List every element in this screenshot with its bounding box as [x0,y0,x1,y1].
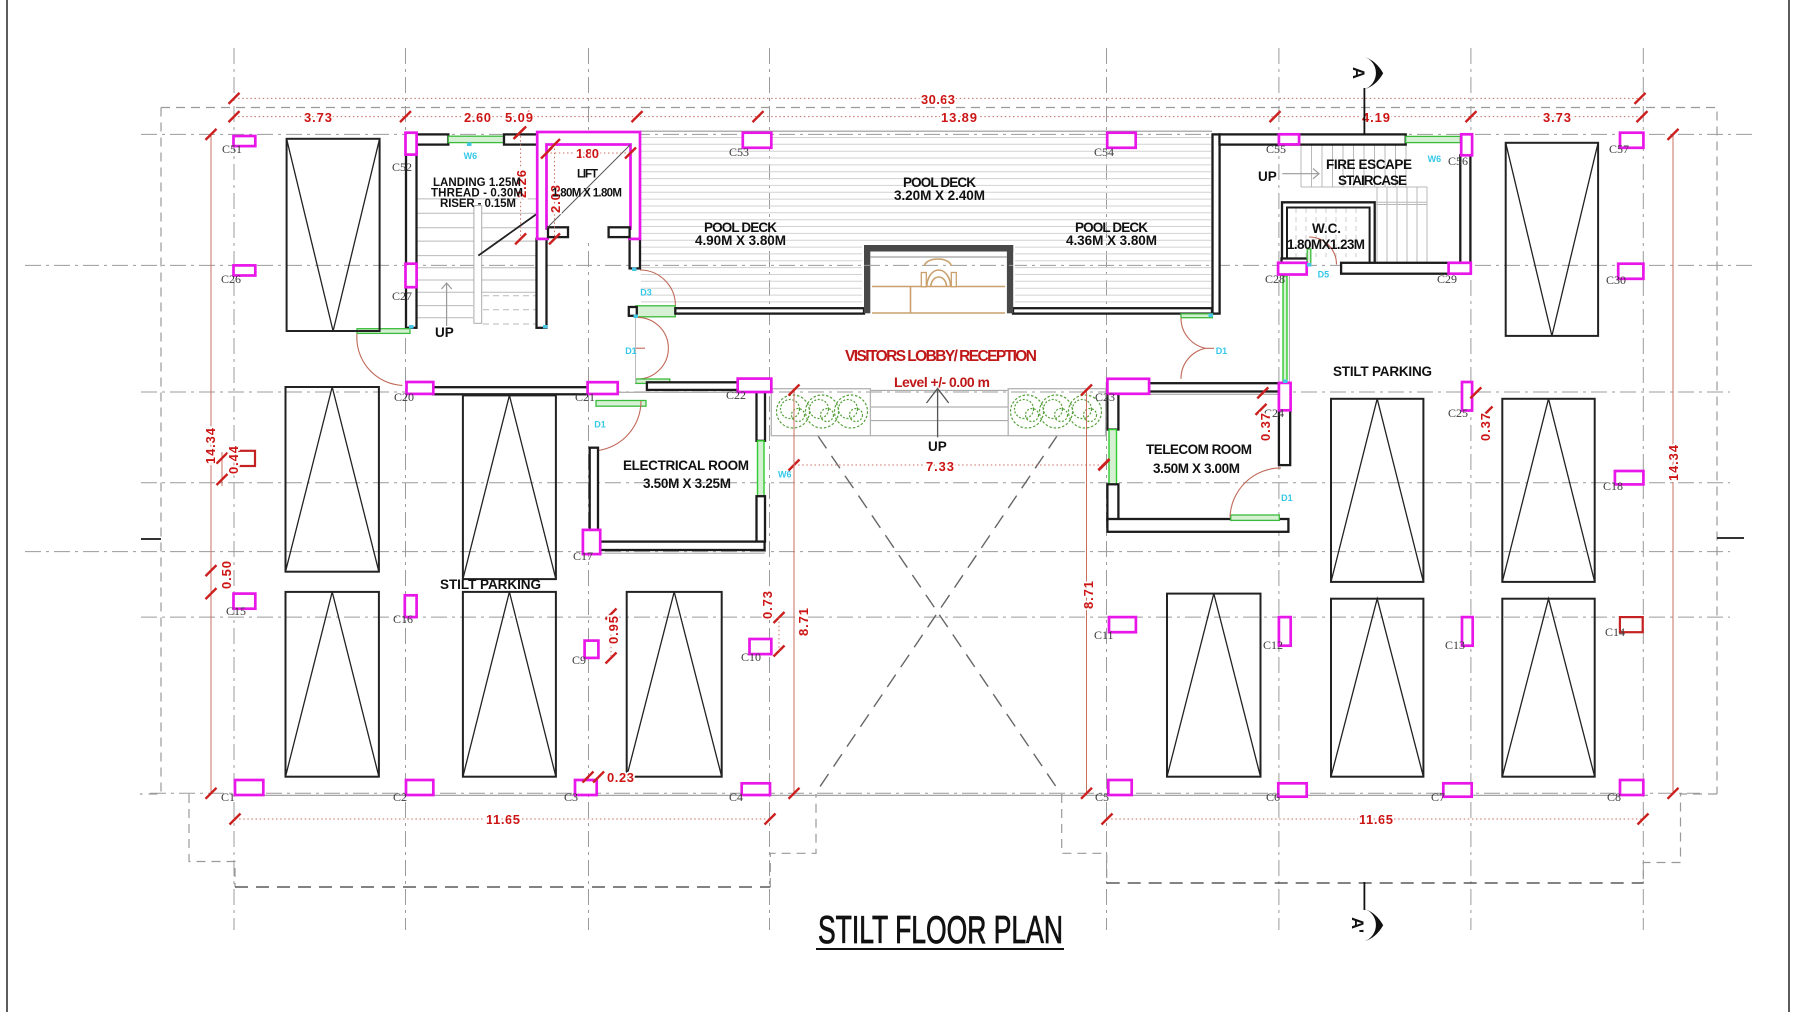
svg-text:C55: C55 [1266,142,1286,156]
svg-text:W.C.: W.C. [1312,221,1341,236]
svg-text:C15: C15 [226,604,246,618]
svg-text:C12: C12 [1263,638,1283,652]
svg-text:STILT PARKING: STILT PARKING [440,577,541,592]
svg-text:UP: UP [1258,169,1277,184]
svg-text:UP: UP [928,439,947,454]
svg-text:0.23: 0.23 [607,770,634,785]
svg-text:C30: C30 [1606,273,1626,287]
svg-text:3.20M X 2.40M: 3.20M X 2.40M [894,188,985,203]
svg-text:C17: C17 [573,549,593,563]
svg-text:D5: D5 [1318,270,1330,280]
svg-text:C27: C27 [392,289,412,303]
svg-text:C25: C25 [1448,406,1468,420]
svg-text:C2: C2 [393,790,407,804]
svg-text:W6: W6 [1428,154,1442,164]
svg-text:Level +/- 0.00 m: Level +/- 0.00 m [894,374,990,390]
svg-text:D1: D1 [1281,493,1293,503]
svg-text:FIRE ESCAPE: FIRE ESCAPE [1326,157,1412,172]
svg-text:A': A' [1348,917,1366,933]
svg-text:VISITORS LOBBY/ RECEPTION: VISITORS LOBBY/ RECEPTION [845,348,1037,365]
svg-text:C16: C16 [393,612,413,626]
svg-text:D1: D1 [1216,346,1228,356]
svg-text:1.80: 1.80 [576,146,599,161]
svg-text:30.63: 30.63 [921,92,955,107]
svg-text:C9: C9 [572,653,586,667]
svg-text:C21: C21 [575,390,595,404]
svg-text:STILT FLOOR PLAN: STILT FLOOR PLAN [818,909,1063,952]
svg-text:C29: C29 [1437,272,1457,286]
svg-text:C23: C23 [1095,390,1115,404]
svg-text:4.36M X 3.80M: 4.36M X 3.80M [1066,233,1157,248]
svg-text:D1: D1 [625,346,637,356]
svg-text:C26: C26 [221,272,241,286]
svg-text:0.44: 0.44 [226,445,241,474]
svg-text:3.73: 3.73 [304,110,332,125]
svg-text:UP: UP [435,325,454,340]
svg-text:C5: C5 [1095,790,1109,804]
svg-text:W6: W6 [778,470,792,480]
svg-text:C10: C10 [741,650,761,664]
svg-text:1.80M X 1.80M: 1.80M X 1.80M [552,188,622,200]
svg-text:C7: C7 [1431,790,1445,804]
svg-text:D3: D3 [640,288,652,298]
svg-text:8.71: 8.71 [1081,581,1096,609]
svg-text:STAIRCASE: STAIRCASE [1338,173,1407,188]
svg-text:0.50: 0.50 [219,561,234,589]
svg-text:C11: C11 [1094,628,1114,642]
svg-text:3.50M X 3.00M: 3.50M X 3.00M [1153,461,1240,476]
svg-text:C14: C14 [1605,625,1625,639]
svg-text:2.60: 2.60 [464,110,491,125]
svg-text:A: A [1349,67,1367,79]
svg-text:11.65: 11.65 [486,812,520,827]
svg-text:C51: C51 [222,142,242,156]
svg-text:4.90M X 3.80M: 4.90M X 3.80M [695,233,786,248]
svg-text:TELECOM ROOM: TELECOM ROOM [1146,442,1252,457]
svg-text:8.71: 8.71 [796,608,811,636]
svg-text:1.80MX1.23M: 1.80MX1.23M [1287,237,1365,252]
svg-text:0.37: 0.37 [1478,413,1493,441]
svg-text:C1: C1 [221,790,235,804]
svg-text:13.89: 13.89 [941,110,977,125]
svg-text:LIFT: LIFT [577,169,598,181]
svg-text:C28: C28 [1265,272,1285,286]
svg-text:3.50M X 3.25M: 3.50M X 3.25M [643,476,731,491]
svg-text:C20: C20 [394,390,414,404]
svg-text:14.34: 14.34 [203,427,218,464]
svg-text:C22: C22 [726,388,746,402]
svg-text:C8: C8 [1607,790,1621,804]
svg-text:C13: C13 [1445,638,1465,652]
svg-text:0.73: 0.73 [760,591,775,619]
svg-text:C6: C6 [1266,790,1280,804]
svg-text:C53: C53 [729,145,749,159]
svg-text:W6: W6 [464,151,478,161]
svg-text:0.95: 0.95 [606,616,621,644]
svg-text:C54: C54 [1094,145,1114,159]
svg-text:0.37: 0.37 [1258,413,1273,441]
svg-text:11.65: 11.65 [1359,812,1393,827]
svg-text:C4: C4 [729,790,743,804]
svg-text:STILT PARKING: STILT PARKING [1333,364,1432,379]
svg-text:C3: C3 [564,790,578,804]
svg-text:C18: C18 [1603,479,1623,493]
svg-text:RISER - 0.15M: RISER - 0.15M [440,198,516,210]
svg-text:C57: C57 [1609,142,1629,156]
svg-text:7.33: 7.33 [926,459,954,474]
svg-text:D1: D1 [594,420,606,430]
svg-text:5.09: 5.09 [505,110,533,125]
svg-text:C56: C56 [1448,154,1468,168]
svg-text:4.19: 4.19 [1362,110,1390,125]
svg-text:3.73: 3.73 [1543,110,1571,125]
svg-text:C52: C52 [392,160,412,174]
svg-text:ELECTRICAL ROOM: ELECTRICAL ROOM [623,458,749,473]
svg-text:14.34: 14.34 [1666,444,1681,481]
